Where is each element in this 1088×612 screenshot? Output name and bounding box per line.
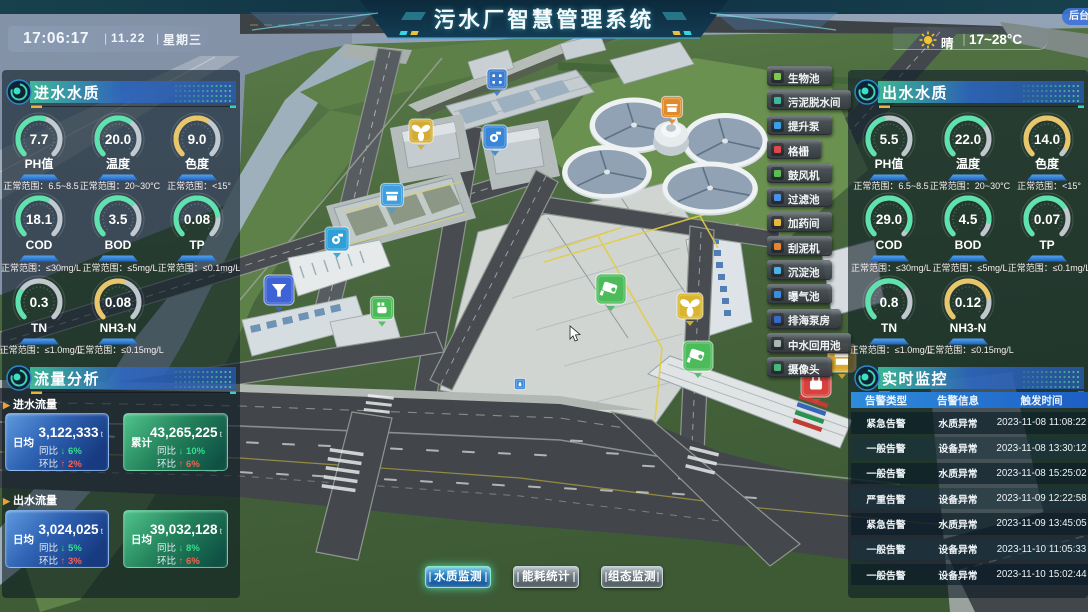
svg-text:正常范围：<15°: 正常范围：<15° bbox=[167, 180, 231, 191]
svg-text:NH3-N: NH3-N bbox=[950, 321, 987, 335]
svg-text:正常范围：≤5mg/L: 正常范围：≤5mg/L bbox=[933, 262, 1008, 273]
svg-text:色度: 色度 bbox=[185, 156, 210, 171]
svg-text:TP: TP bbox=[1039, 238, 1054, 252]
svg-text:正常范围：≤1.0mg/L: 正常范围：≤1.0mg/L bbox=[850, 344, 932, 355]
svg-text:NH3-N: NH3-N bbox=[100, 321, 137, 335]
svg-text:14.0: 14.0 bbox=[1034, 132, 1060, 147]
svg-text:0.07: 0.07 bbox=[1034, 212, 1060, 227]
svg-text:正常范围：≤0.1mg/L: 正常范围：≤0.1mg/L bbox=[158, 262, 240, 273]
svg-text:COD: COD bbox=[26, 238, 53, 252]
svg-text:正常范围：≤5mg/L: 正常范围：≤5mg/L bbox=[83, 262, 158, 273]
svg-text:PH值: PH值 bbox=[25, 156, 54, 171]
svg-text:0.08: 0.08 bbox=[105, 295, 132, 310]
svg-text:BOD: BOD bbox=[105, 238, 132, 252]
svg-text:正常范围：<15°: 正常范围：<15° bbox=[1017, 180, 1081, 191]
svg-text:正常范围：≤1.0mg/L: 正常范围：≤1.0mg/L bbox=[0, 344, 82, 355]
svg-text:TN: TN bbox=[881, 321, 897, 335]
svg-text:正常范围：≤30mg/L: 正常范围：≤30mg/L bbox=[851, 262, 931, 273]
svg-text:5.5: 5.5 bbox=[880, 132, 899, 147]
svg-text:正常范围：≤0.15mg/L: 正常范围：≤0.15mg/L bbox=[926, 344, 1013, 355]
svg-text:正常范围：≤30mg/L: 正常范围：≤30mg/L bbox=[1, 262, 81, 273]
svg-text:7.7: 7.7 bbox=[30, 132, 49, 147]
svg-text:29.0: 29.0 bbox=[876, 212, 902, 227]
svg-text:正常范围：20~30°C: 正常范围：20~30°C bbox=[930, 180, 1011, 191]
svg-text:正常范围：20~30°C: 正常范围：20~30°C bbox=[80, 180, 161, 191]
svg-text:0.8: 0.8 bbox=[880, 295, 899, 310]
svg-text:COD: COD bbox=[876, 238, 903, 252]
svg-text:18.1: 18.1 bbox=[26, 212, 53, 227]
svg-text:色度: 色度 bbox=[1035, 156, 1060, 171]
svg-text:PH值: PH值 bbox=[875, 156, 904, 171]
svg-text:3.5: 3.5 bbox=[109, 212, 128, 227]
svg-text:20.0: 20.0 bbox=[105, 132, 131, 147]
svg-text:0.3: 0.3 bbox=[30, 295, 49, 310]
svg-text:正常范围：6.5~8.5: 正常范围：6.5~8.5 bbox=[853, 180, 928, 191]
svg-text:4.5: 4.5 bbox=[959, 212, 978, 227]
svg-text:BOD: BOD bbox=[955, 238, 982, 252]
svg-text:TN: TN bbox=[31, 321, 47, 335]
svg-text:正常范围：6.5~8.5: 正常范围：6.5~8.5 bbox=[3, 180, 78, 191]
svg-text:TP: TP bbox=[189, 238, 204, 252]
svg-text:0.12: 0.12 bbox=[955, 295, 981, 310]
svg-text:正常范围：≤0.1mg/L: 正常范围：≤0.1mg/L bbox=[1008, 262, 1088, 273]
svg-text:9.0: 9.0 bbox=[188, 132, 207, 147]
svg-text:温度: 温度 bbox=[956, 156, 981, 171]
svg-text:22.0: 22.0 bbox=[955, 132, 981, 147]
svg-text:正常范围：≤0.15mg/L: 正常范围：≤0.15mg/L bbox=[76, 344, 163, 355]
svg-text:温度: 温度 bbox=[106, 156, 131, 171]
svg-text:0.08: 0.08 bbox=[184, 212, 211, 227]
